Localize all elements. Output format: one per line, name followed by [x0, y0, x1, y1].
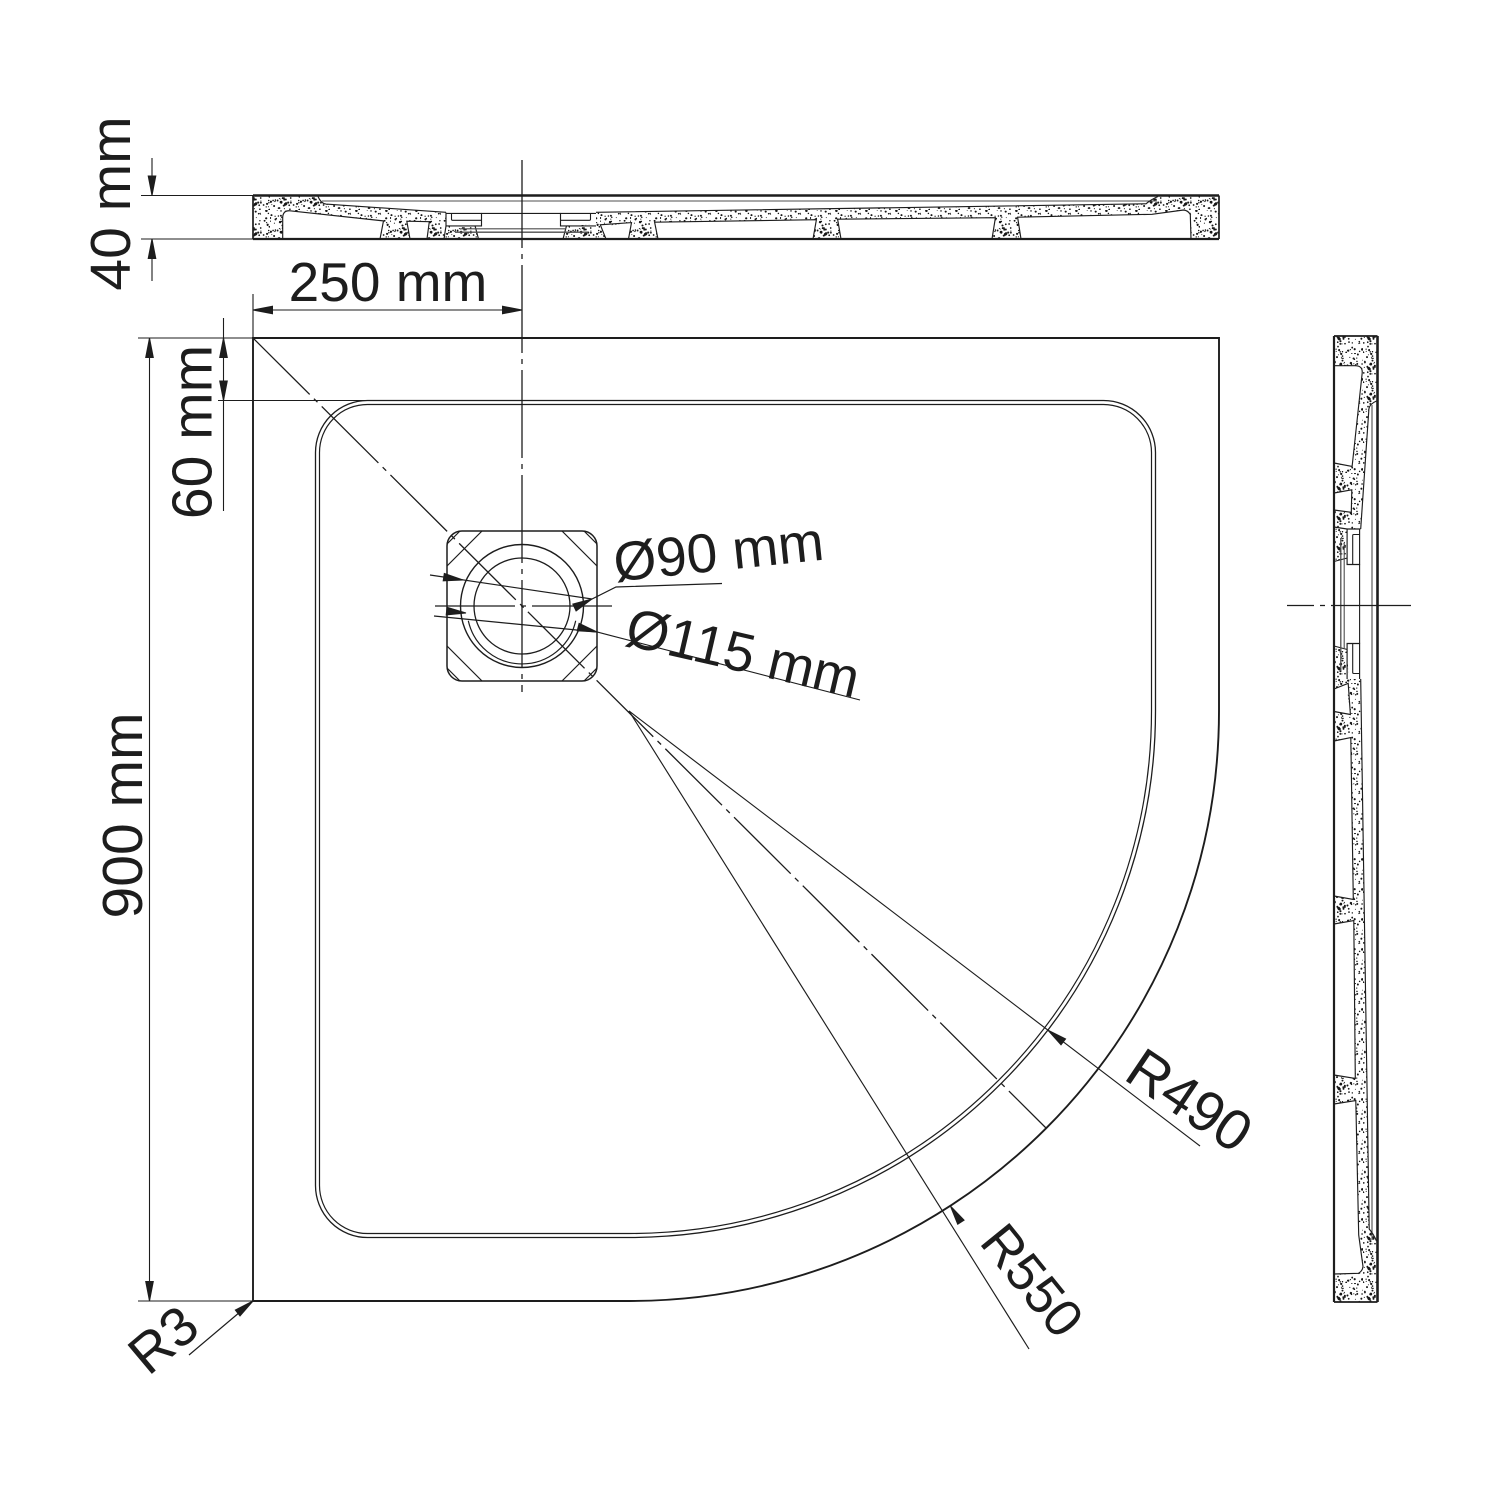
svg-text:250 mm: 250 mm	[289, 251, 488, 313]
svg-text:60 mm: 60 mm	[161, 345, 225, 519]
svg-text:40 mm: 40 mm	[79, 116, 143, 290]
svg-text:R490: R490	[1115, 1036, 1264, 1165]
svg-text:Ø90 mm: Ø90 mm	[610, 510, 826, 594]
svg-text:R3: R3	[116, 1293, 210, 1386]
svg-text:Ø115 mm: Ø115 mm	[620, 596, 865, 710]
svg-text:900 mm: 900 mm	[91, 713, 155, 919]
svg-text:R550: R550	[969, 1213, 1095, 1349]
